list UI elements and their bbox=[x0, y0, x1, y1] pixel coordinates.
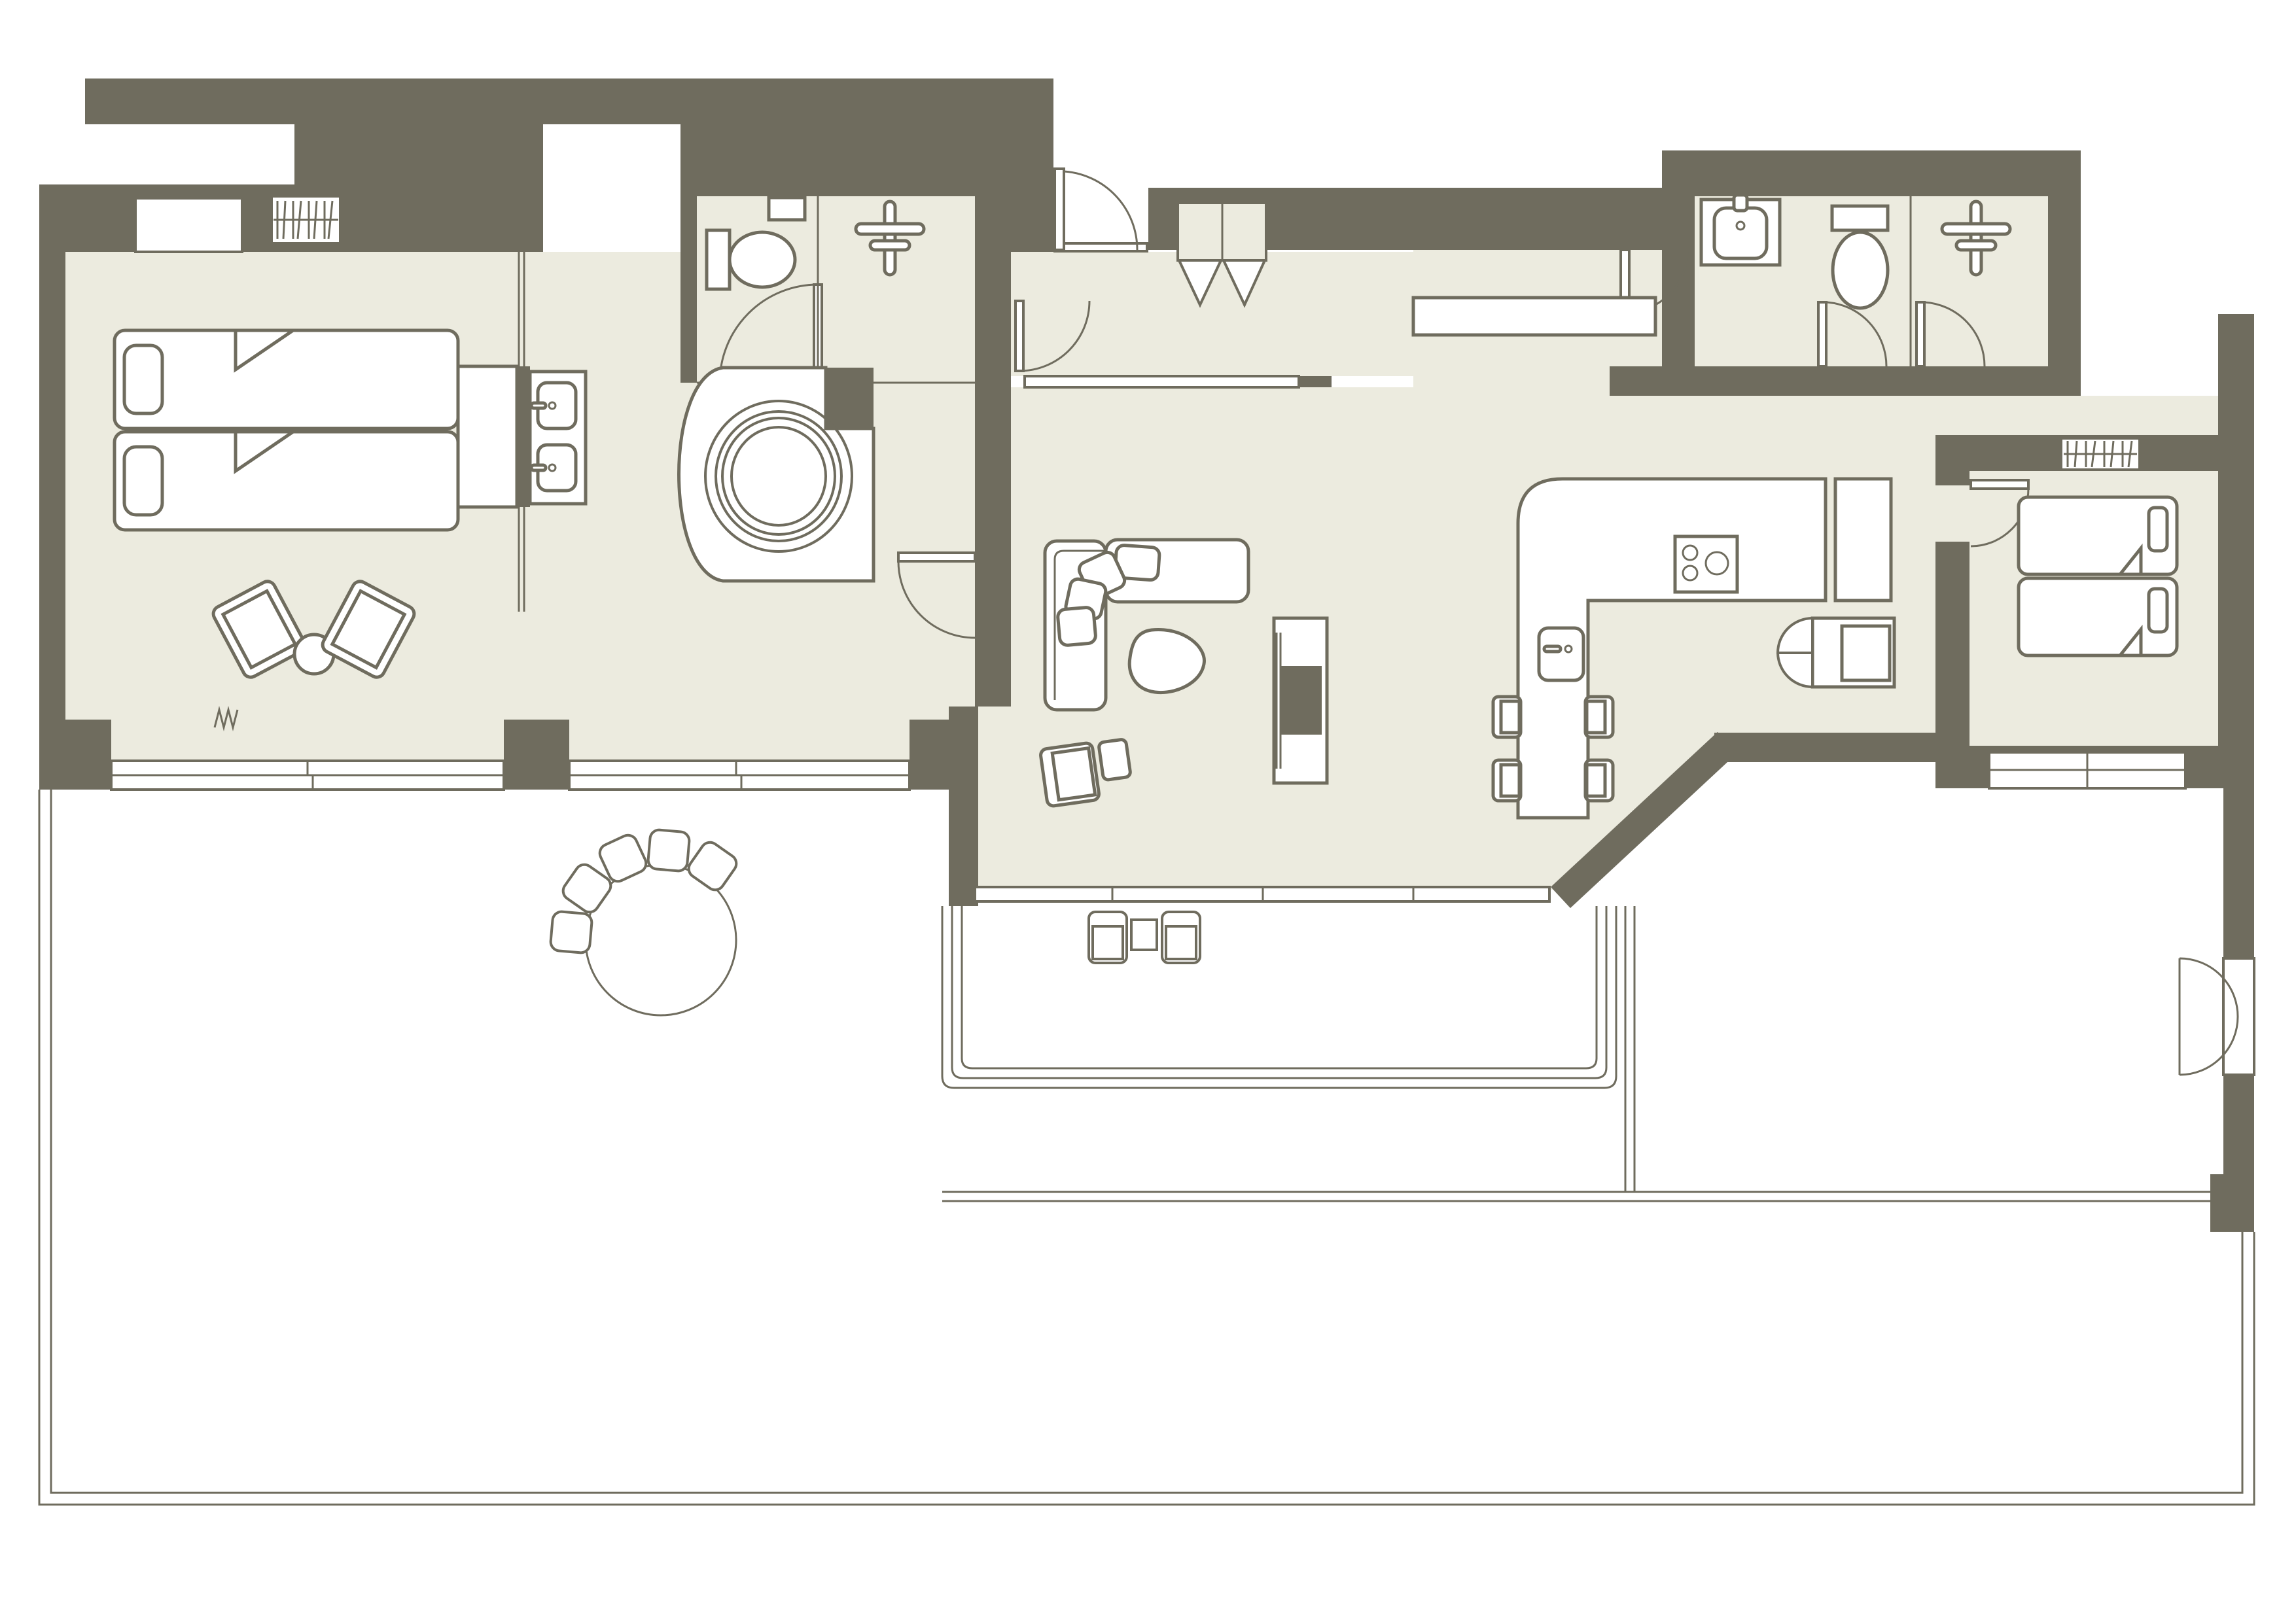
armchair-seat bbox=[1052, 748, 1095, 800]
wall-bedroom-right-west-b bbox=[1935, 542, 1969, 746]
bathroom1-door-leaf bbox=[1818, 302, 1826, 366]
wall-left-outer bbox=[39, 184, 65, 788]
wall-pier-east-a bbox=[910, 720, 949, 790]
wall-threshold-bit bbox=[1299, 376, 1332, 387]
wall-sanitary-bottom bbox=[1610, 366, 2081, 396]
bathroom2-door-leaf bbox=[1916, 302, 1924, 366]
shower-left-stem bbox=[885, 201, 895, 275]
island-faucet bbox=[1544, 646, 1561, 652]
terrace-platform-steps-h bbox=[942, 1192, 2242, 1201]
sunken-court-step-3 bbox=[962, 906, 1597, 1068]
vanity-faucet-2 bbox=[531, 465, 546, 470]
wall-terrace-step-block bbox=[2210, 1174, 2254, 1232]
toilet-left-bowl bbox=[730, 232, 795, 287]
shower-left-arm bbox=[856, 224, 924, 234]
wall-pier-east-b bbox=[949, 707, 978, 906]
bar-chair-1-seat bbox=[1501, 701, 1519, 733]
wall-sanitary-right bbox=[2048, 196, 2081, 396]
bath-left-exit-door-leaf bbox=[898, 553, 975, 561]
sofa-cushion-4 bbox=[1057, 607, 1097, 646]
sunken-court-step-1 bbox=[942, 906, 1616, 1088]
toilet-left-tank bbox=[707, 230, 730, 289]
wall-pier-sw bbox=[39, 720, 111, 790]
bed-left-2 bbox=[115, 432, 458, 530]
shower-left-head bbox=[870, 241, 910, 250]
bed-left-1-pillow bbox=[124, 345, 162, 413]
shower-right-arm bbox=[1942, 224, 2010, 234]
wall-wedge-top bbox=[1714, 733, 1935, 762]
floor-wc-shower-left bbox=[697, 196, 975, 383]
bench-cushion-5 bbox=[685, 839, 740, 894]
wall-bedroom-right-west-a bbox=[1935, 471, 1969, 485]
outdoor-side-table bbox=[1131, 920, 1157, 950]
wall-wc-left bbox=[680, 196, 697, 383]
bedroom-left-alcove bbox=[135, 198, 242, 252]
terrace-lounge-set bbox=[1089, 912, 1200, 963]
wall-hall-west-jamb bbox=[1011, 184, 1053, 252]
bedroom-right-door-leaf bbox=[1971, 480, 2028, 489]
wall-leftblock-east bbox=[975, 184, 1011, 707]
bar-chair-2-seat bbox=[1501, 765, 1519, 796]
wall-top-band bbox=[85, 79, 1053, 124]
wall-east-outer bbox=[2218, 314, 2254, 788]
ottoman bbox=[1099, 739, 1131, 780]
island-sink bbox=[1539, 628, 1583, 680]
bench-cushion-1 bbox=[550, 911, 592, 953]
wall-corridor-arm-top bbox=[1610, 188, 1662, 250]
organic-coffee-table bbox=[1129, 629, 1204, 692]
wall-counter-living bbox=[1413, 298, 1655, 335]
sink-right-faucet bbox=[1734, 195, 1747, 211]
bench-cushion-4 bbox=[647, 829, 690, 871]
wall-pier-mid bbox=[504, 720, 569, 790]
floor-plan-canvas bbox=[0, 0, 2296, 1623]
floor-plan bbox=[0, 0, 2296, 1623]
sink-right bbox=[1714, 208, 1767, 258]
wall-east-below-b bbox=[2223, 1075, 2254, 1176]
bed-right-2-pillow bbox=[2149, 589, 2167, 632]
lounge-chair-1-seat bbox=[1093, 926, 1123, 959]
shower-right-head bbox=[1956, 241, 1996, 250]
sunken-court-step-2 bbox=[952, 906, 1606, 1078]
bed-left-2-pillow bbox=[124, 447, 162, 515]
terrace-bench-cushions bbox=[550, 829, 739, 953]
wall-east-below-a bbox=[2223, 788, 2254, 958]
shower-right-stem bbox=[1971, 201, 1981, 275]
wc-left-shelf bbox=[769, 198, 805, 220]
toilet-right-bowl bbox=[1833, 232, 1888, 308]
entry-door-leaf bbox=[1055, 169, 1064, 250]
vanity-faucet-1 bbox=[531, 403, 546, 408]
tall-cabinet bbox=[1835, 479, 1891, 601]
entry-door-swing bbox=[1064, 171, 1137, 250]
entry-door-sill bbox=[1055, 243, 1147, 251]
wardrobe-left bbox=[458, 366, 517, 507]
bed-left-1 bbox=[115, 330, 458, 428]
bar-chair-3-seat bbox=[1587, 701, 1605, 733]
hall-threshold-strip bbox=[1025, 376, 1299, 387]
hall-door-leaf bbox=[1016, 301, 1023, 371]
tv-console-dark-center bbox=[1281, 666, 1322, 735]
toilet-right-tank bbox=[1832, 206, 1888, 230]
wall-tub-notch bbox=[826, 368, 874, 428]
wall-sanitary-top bbox=[1662, 150, 2081, 196]
bar-chair-4-seat bbox=[1587, 765, 1605, 796]
bed-right-1-pillow bbox=[2149, 508, 2167, 551]
terrace-platform-steps-v bbox=[1625, 906, 1634, 1192]
lounge-chair-2-seat bbox=[1166, 926, 1196, 959]
pantry-inner bbox=[1842, 626, 1890, 680]
floor-corridor-right bbox=[1935, 396, 2218, 435]
